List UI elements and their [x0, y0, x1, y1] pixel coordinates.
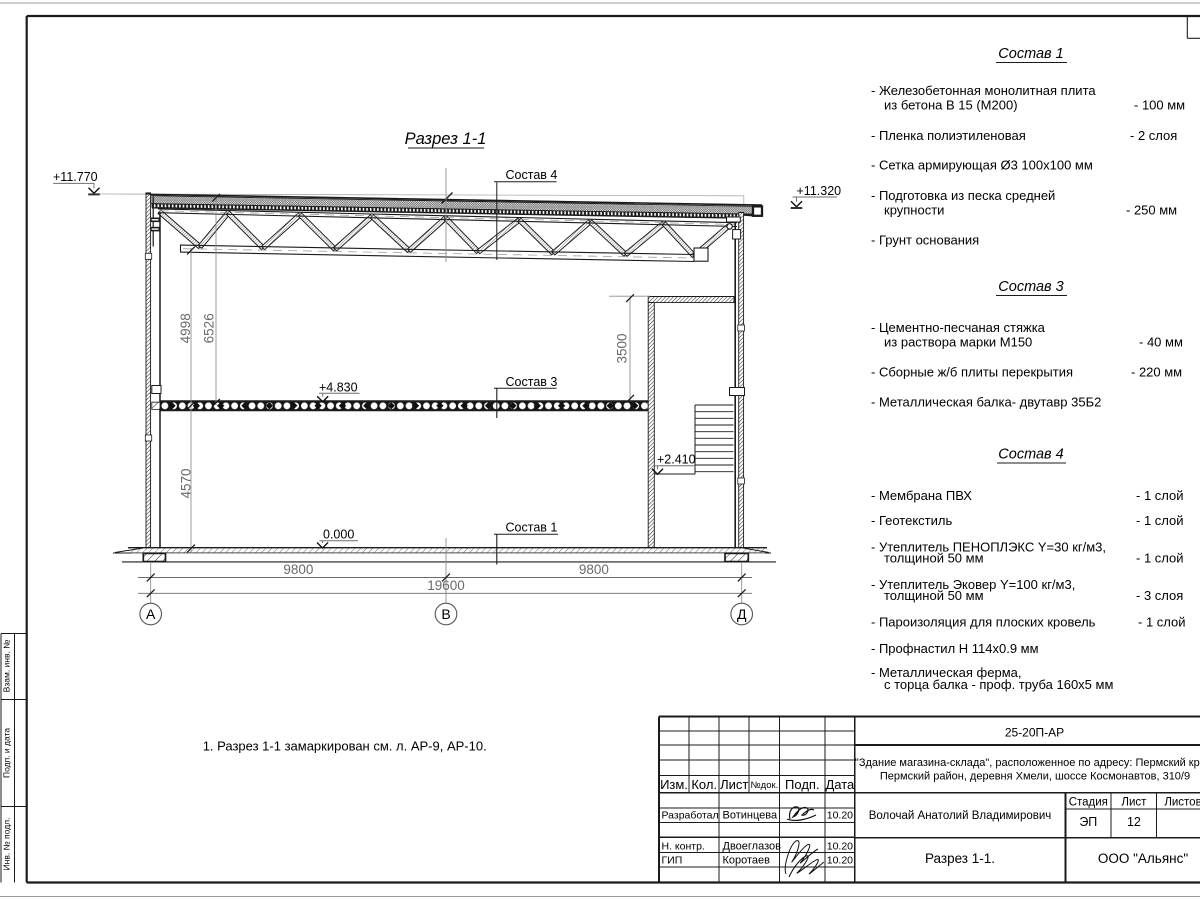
svg-text:- Пароизоляция для плоских кро: - Пароизоляция для плоских кровель [871, 615, 1096, 630]
svg-text:Пермский район, деревня Хмели,: Пермский район, деревня Хмели, шоссе Кос… [880, 771, 1190, 783]
svg-text:9800: 9800 [579, 562, 609, 577]
svg-text:Инв. № подл.: Инв. № подл. [1, 818, 11, 871]
svg-text:+11.320: +11.320 [797, 184, 842, 198]
svg-text:ЭП: ЭП [1079, 815, 1097, 829]
svg-text:- Профнастил Н 114х0.9 мм: - Профнастил Н 114х0.9 мм [871, 641, 1039, 656]
svg-text:Волочай Анатолий Владимирович: Волочай Анатолий Владимирович [869, 810, 1052, 822]
svg-text:10.20: 10.20 [827, 841, 853, 853]
svg-text:Состав 1: Состав 1 [506, 521, 558, 535]
svg-text:+11.770: +11.770 [53, 170, 98, 184]
svg-text:- 100 мм: - 100 мм [1134, 98, 1185, 113]
svg-text:25-20П-АР: 25-20П-АР [1005, 726, 1064, 740]
svg-text:0.000: 0.000 [323, 528, 354, 542]
svg-text:- 250 мм: - 250 мм [1126, 203, 1177, 218]
svg-text:- Пленка полиэтиленовая: - Пленка полиэтиленовая [871, 128, 1026, 143]
svg-text:+2.410: +2.410 [657, 453, 696, 467]
svg-text:4998: 4998 [178, 313, 193, 343]
svg-text:- Мембрана ПВХ: - Мембрана ПВХ [871, 488, 972, 503]
svg-text:Состав 4: Состав 4 [998, 447, 1063, 463]
svg-text:12: 12 [1127, 815, 1141, 829]
svg-text:Состав 1: Состав 1 [998, 46, 1063, 62]
svg-text:В: В [441, 606, 450, 622]
svg-text:Изм.: Изм. [660, 777, 688, 792]
svg-text:крупности: крупности [884, 203, 944, 218]
svg-text:Вотинцева: Вотинцева [723, 810, 778, 822]
svg-text:- 40 мм: - 40 мм [1139, 335, 1183, 350]
svg-text:Стадия: Стадия [1069, 797, 1108, 809]
svg-text:10.20: 10.20 [827, 855, 853, 867]
svg-text:- 220 мм: - 220 мм [1131, 365, 1182, 380]
svg-text:из бетона В 15 (М200): из бетона В 15 (М200) [884, 98, 1018, 113]
svg-text:ГИП: ГИП [662, 855, 683, 867]
svg-text:Взам. инв. №: Взам. инв. № [1, 640, 11, 693]
svg-text:- 3 слоя: - 3 слоя [1136, 588, 1183, 603]
svg-text:Разрез 1-1.: Разрез 1-1. [925, 851, 995, 866]
svg-text:- 2 слоя: - 2 слоя [1130, 128, 1177, 143]
svg-text:- 1 слой: - 1 слой [1138, 615, 1186, 630]
svg-text:- 1 слой: - 1 слой [1136, 551, 1184, 566]
svg-text:Лист: Лист [720, 777, 748, 792]
svg-text:- Цементно-песчаная стяжка: - Цементно-песчаная стяжка [871, 320, 1046, 335]
svg-text:- Геотекстиль: - Геотекстиль [871, 513, 952, 528]
svg-text:- Сборные ж/б плиты перекрытия: - Сборные ж/б плиты перекрытия [871, 365, 1073, 380]
svg-text:- Подготовка из песка средней: - Подготовка из песка средней [871, 188, 1055, 203]
svg-text:Состав 4: Состав 4 [506, 168, 558, 182]
svg-text:- Металлическая балка- двутавр: - Металлическая балка- двутавр 35Б2 [871, 395, 1101, 410]
svg-text:Разрез 1-1: Разрез 1-1 [405, 130, 487, 148]
svg-text:Д: Д [737, 606, 747, 622]
svg-text:3500: 3500 [614, 333, 629, 363]
svg-text:- Грунт основания: - Грунт основания [871, 233, 979, 248]
svg-text:Н. контр.: Н. контр. [662, 841, 705, 853]
svg-text:толщиной 50 мм: толщиной 50 мм [884, 551, 984, 566]
svg-text:Двоеглазов: Двоеглазов [723, 841, 782, 853]
svg-text:Подп. и дата: Подп. и дата [1, 728, 11, 778]
svg-text:ООО "Альянс": ООО "Альянс" [1098, 851, 1188, 866]
svg-text:Листов: Листов [1164, 797, 1200, 809]
svg-text:- Железобетонная монолитная п: - Железобетонная монолитная плита [871, 83, 1096, 98]
svg-text:- Сетка армирующая Ø3 100х100: - Сетка армирующая Ø3 100х100 мм [871, 158, 1093, 173]
svg-text:9800: 9800 [283, 562, 313, 577]
svg-text:19600: 19600 [427, 578, 465, 593]
svg-text:с торца балка - проф. труба 16: с торца балка - проф. труба 160х5 мм [884, 677, 1113, 692]
svg-text:4570: 4570 [179, 468, 194, 498]
svg-text:- 1 слой: - 1 слой [1136, 513, 1184, 528]
svg-text:из раствора марки М150: из раствора марки М150 [884, 335, 1032, 350]
svg-text:Состав 3: Состав 3 [998, 279, 1063, 295]
svg-text:Кол.: Кол. [691, 777, 717, 792]
svg-text:Коротаев: Коротаев [723, 855, 771, 867]
svg-text:А: А [146, 606, 156, 622]
svg-text:+4.830: +4.830 [319, 381, 358, 395]
svg-text:10.20: 10.20 [827, 810, 853, 822]
svg-text:Состав 3: Состав 3 [506, 375, 558, 389]
svg-text:Разработал: Разработал [662, 810, 719, 822]
svg-text:Подп.: Подп. [785, 777, 820, 792]
svg-text:"Здание магазина-склада", расп: "Здание магазина-склада", расположенное … [855, 757, 1200, 769]
svg-text:- 1 слой: - 1 слой [1136, 488, 1184, 503]
svg-text:Лист: Лист [1121, 797, 1147, 809]
svg-text:толщиной 50 мм: толщиной 50 мм [884, 588, 984, 603]
svg-text:6526: 6526 [201, 313, 216, 343]
svg-text:1. Разрез 1-1 замаркирован см.: 1. Разрез 1-1 замаркирован см. л. АР-9, … [203, 739, 487, 754]
svg-text:№док.: №док. [750, 780, 778, 791]
svg-text:Дата: Дата [826, 777, 856, 792]
